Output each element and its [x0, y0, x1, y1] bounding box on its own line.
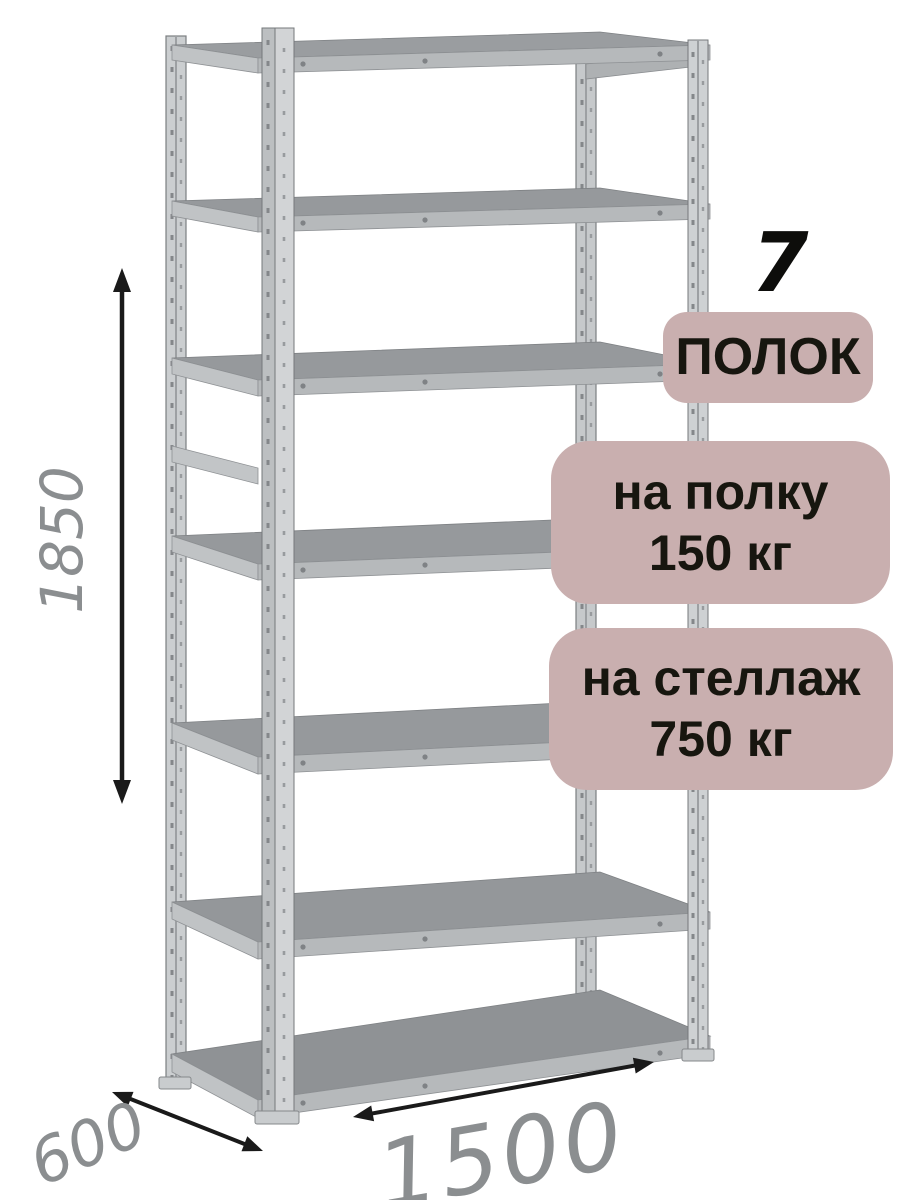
total-capacity-line1: на стеллаж — [582, 648, 861, 709]
shelf-count-badge-label: ПОЛОК — [675, 326, 860, 389]
per-shelf-capacity-line2: 150 кг — [649, 523, 792, 584]
shelf-7 — [172, 990, 710, 1118]
total-capacity-badge: на стеллаж 750 кг — [549, 628, 893, 790]
shelf-count-badge: ПОЛОК — [663, 312, 873, 403]
total-capacity-line2: 750 кг — [649, 709, 792, 770]
shelf-2 — [172, 188, 710, 232]
height-dimension-label: 1850 — [33, 466, 91, 614]
front-left-post — [262, 28, 294, 1120]
per-shelf-capacity-badge: на полку 150 кг — [551, 441, 890, 604]
per-shelf-capacity-line1: на полку — [613, 462, 829, 523]
product-image: 7 ПОЛОК на полку 150 кг на стеллаж 750 к… — [0, 0, 900, 1200]
shelf-6 — [172, 872, 710, 959]
shelf-3 — [172, 342, 710, 396]
back-left-post — [166, 36, 186, 1086]
height-dimension-arrow — [113, 268, 131, 804]
shelf-count-number: 7 — [751, 223, 808, 305]
